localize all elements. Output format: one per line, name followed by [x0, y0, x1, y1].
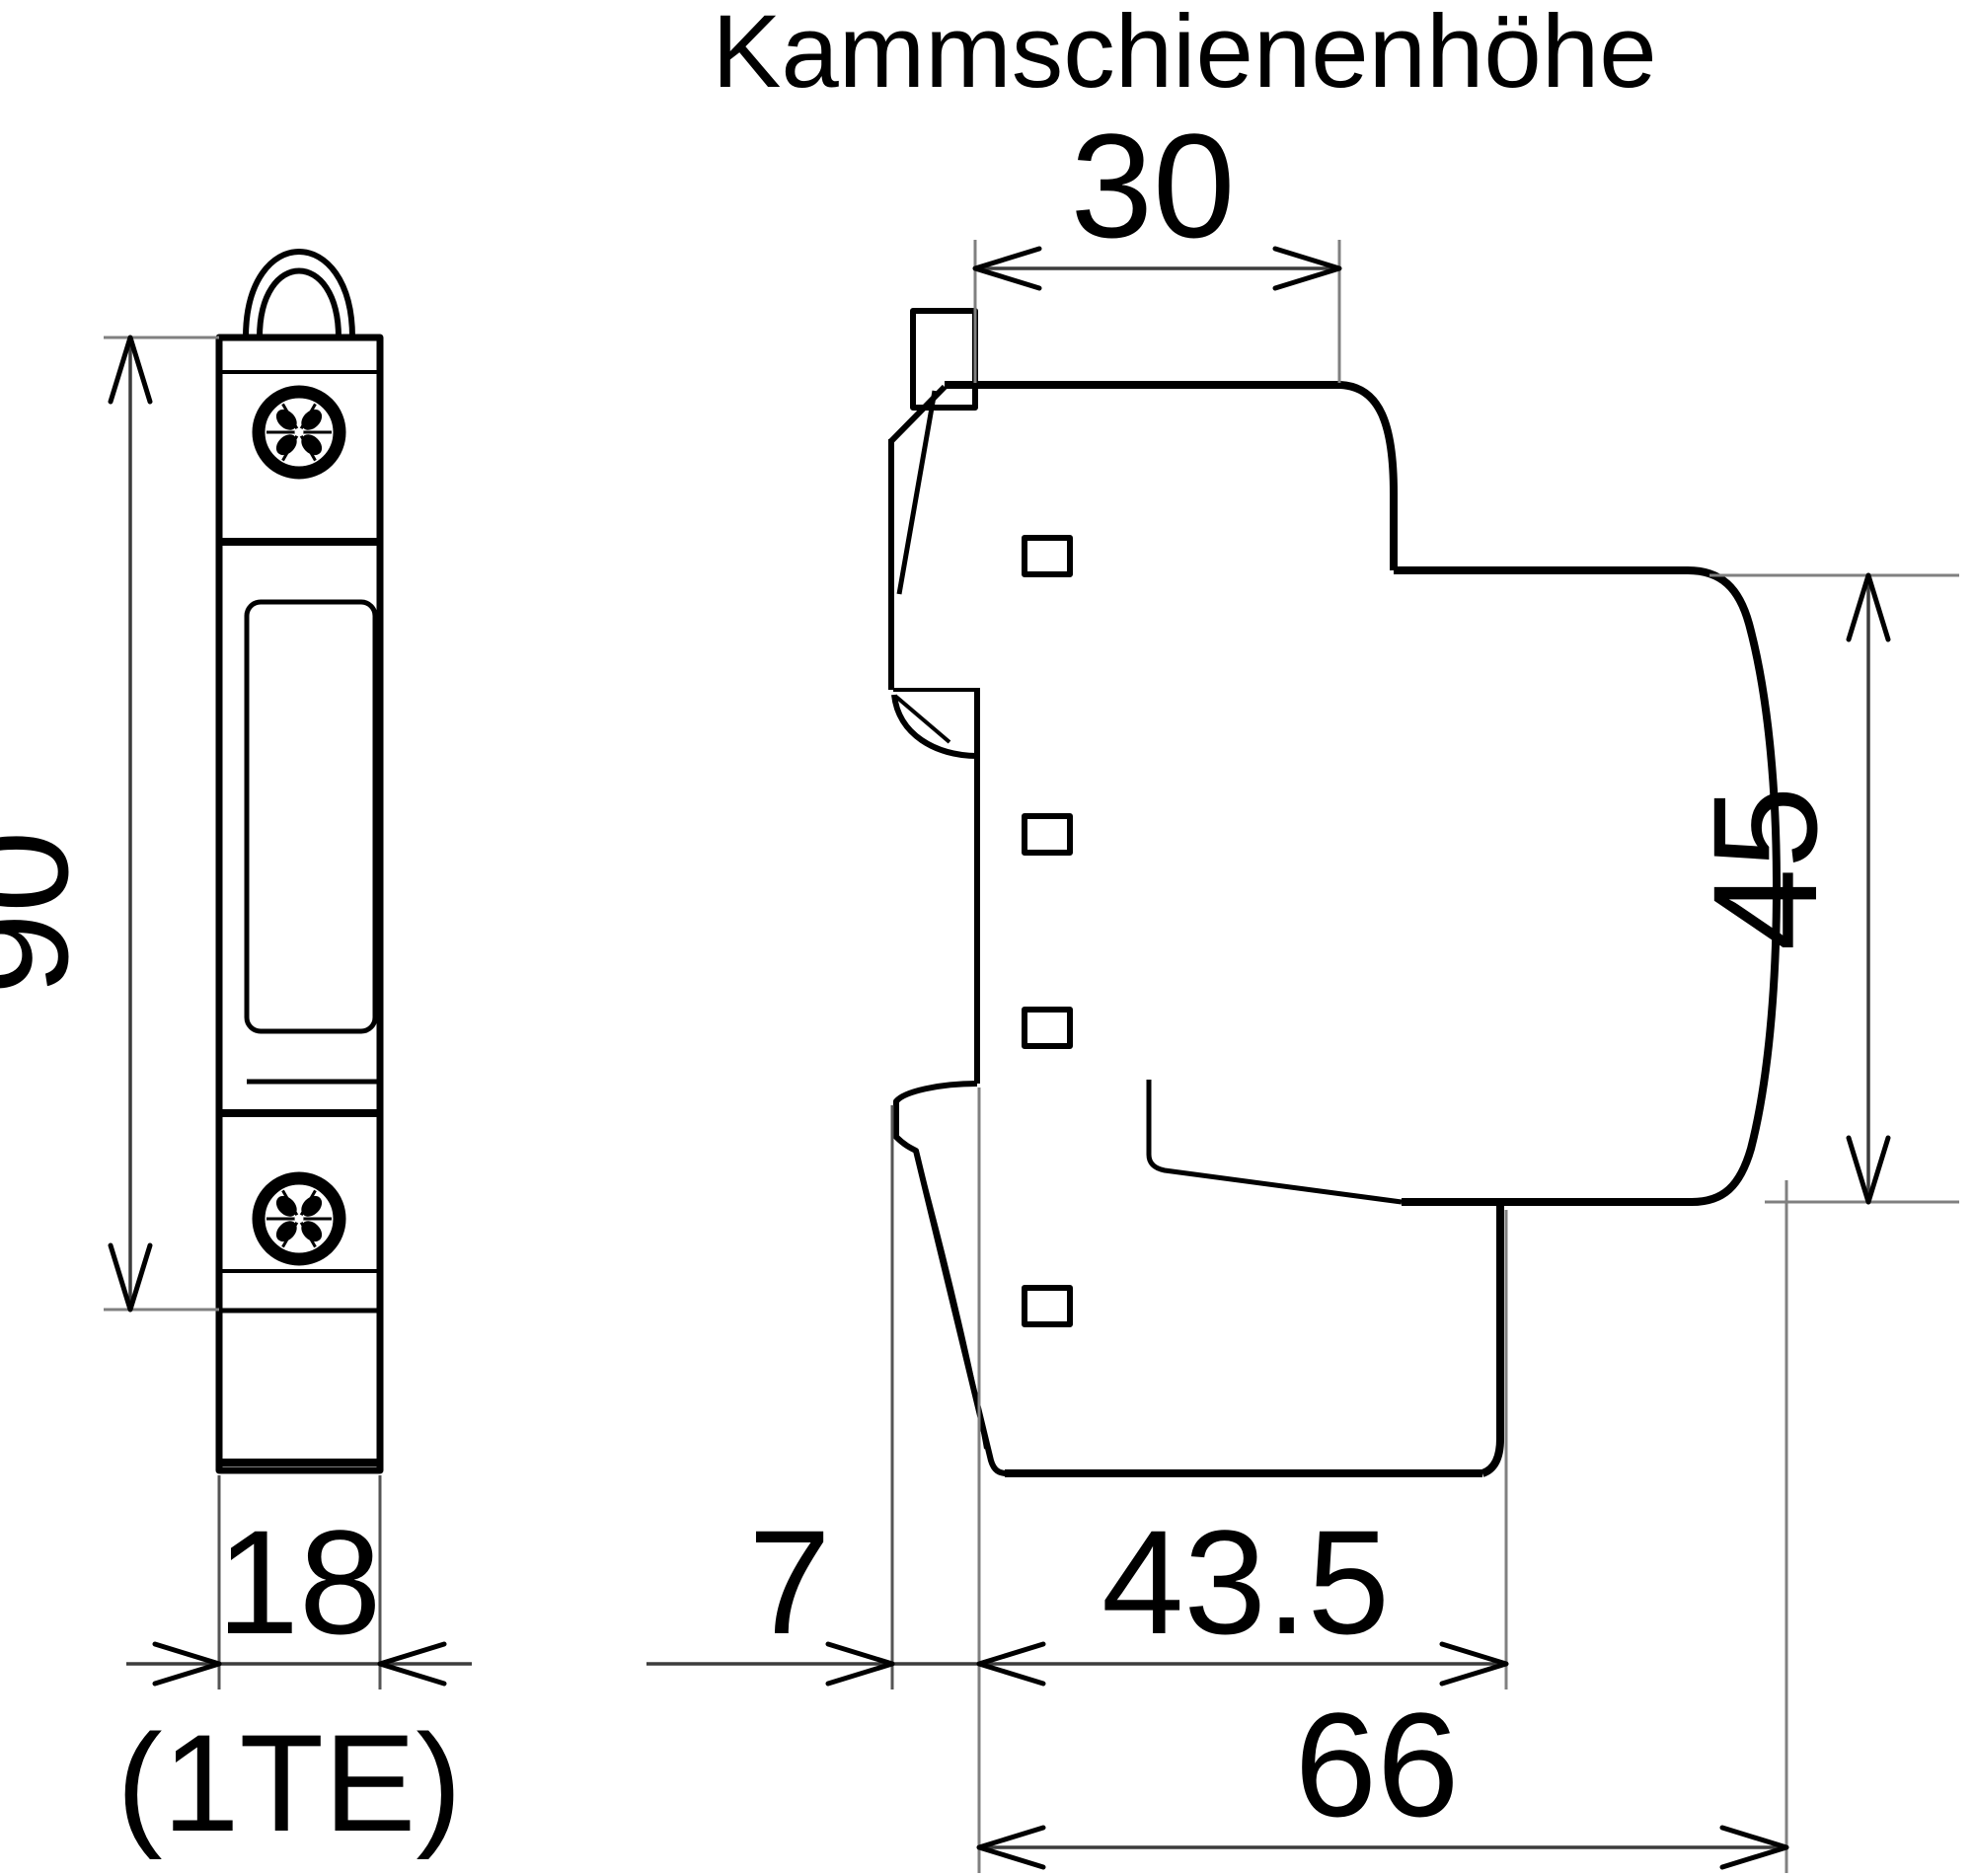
- dimension-label-66: 66: [1295, 1682, 1460, 1847]
- dimension-label-43-5: 43.5: [1101, 1499, 1390, 1665]
- dimension-label-45: 45: [1682, 787, 1848, 951]
- dimension-label-7: 7: [748, 1499, 830, 1665]
- technical-drawing: 90 18 (1TE) Kammschiene: [0, 0, 1974, 1876]
- dimension-label-90: 90: [0, 831, 99, 996]
- drawing-title: Kammschienenhöhe: [712, 0, 1656, 110]
- dimension-label-30: 30: [1071, 103, 1236, 268]
- dimension-label-1te: (1TE): [116, 1705, 462, 1860]
- dimension-label-18: 18: [217, 1499, 382, 1665]
- technical-drawing-page: 90 18 (1TE) Kammschiene: [0, 0, 1974, 1876]
